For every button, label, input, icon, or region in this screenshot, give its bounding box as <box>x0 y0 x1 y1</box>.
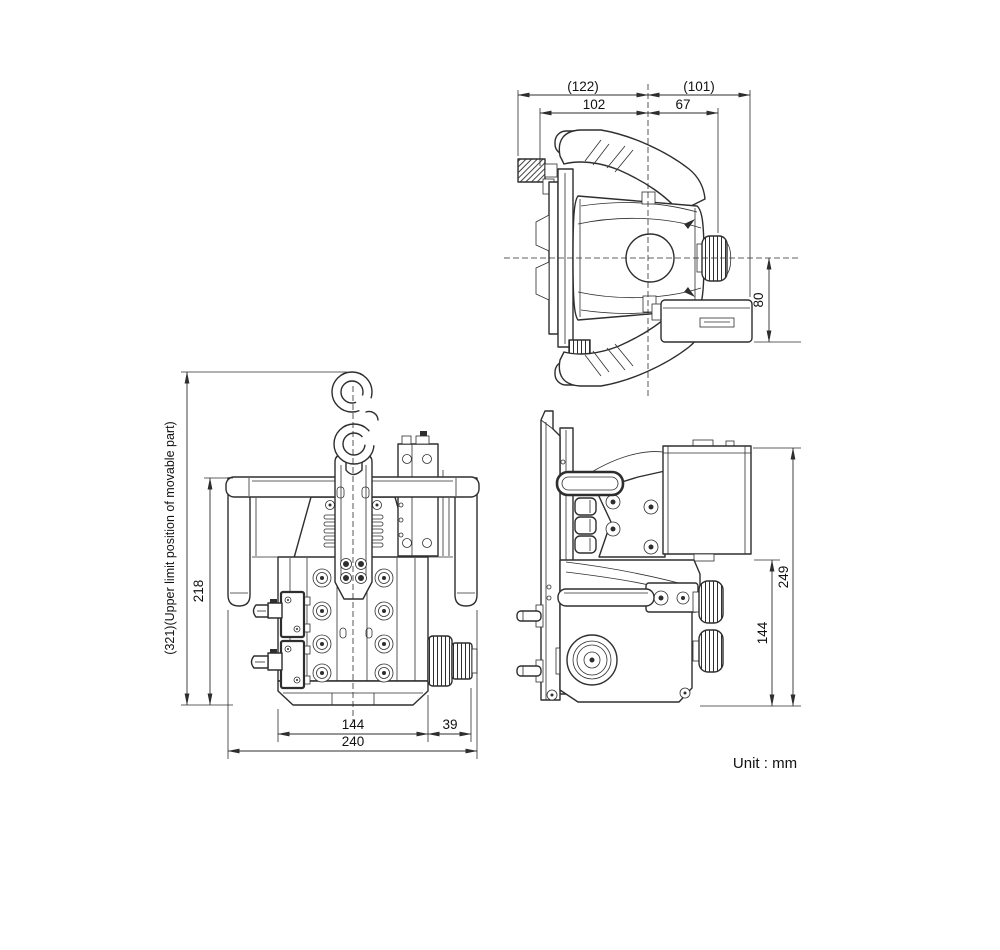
dim-body-width: 144 <box>342 717 365 732</box>
technical-drawing-page: (122) (101) 102 67 80 <box>0 0 1000 950</box>
side-view-drawing: 249 144 <box>517 411 801 706</box>
dim-overall-height: 249 <box>776 566 791 589</box>
unit-label: Unit : mm <box>733 755 797 772</box>
dim-frame-height: 218 <box>191 580 206 603</box>
knurled-knob <box>702 236 727 281</box>
dim-inner-width-right: 67 <box>675 97 690 112</box>
drawing-svg: (122) (101) 102 67 80 <box>0 0 1000 950</box>
dim-connector-width: 39 <box>442 717 457 732</box>
cable-gland <box>428 636 477 686</box>
handle-cap <box>557 472 623 495</box>
front-view-drawing: (321)(Upper limit position of movable pa… <box>163 372 479 759</box>
guide-pin <box>517 666 541 676</box>
dim-overall-width-right: (101) <box>683 79 715 94</box>
guide-pin <box>517 611 541 621</box>
dim-overall-width: 240 <box>342 734 365 749</box>
dim-lower-height: 144 <box>755 621 770 644</box>
dim-inner-width-left: 102 <box>583 97 606 112</box>
top-view-drawing: (122) (101) 102 67 80 <box>504 79 801 398</box>
dim-upper-limit-height: (321)(Upper limit position of movable pa… <box>163 421 177 654</box>
hanger-hooks <box>332 372 387 464</box>
transformer-box <box>663 446 751 554</box>
handle-tube <box>558 589 654 606</box>
dim-junction-box-height: 80 <box>751 292 766 307</box>
connector-plug <box>518 159 545 182</box>
clamp-knob <box>699 630 723 672</box>
roller-wheel <box>567 635 617 685</box>
clamp-knob <box>699 581 723 623</box>
dim-overall-width-left: (122) <box>567 79 599 94</box>
